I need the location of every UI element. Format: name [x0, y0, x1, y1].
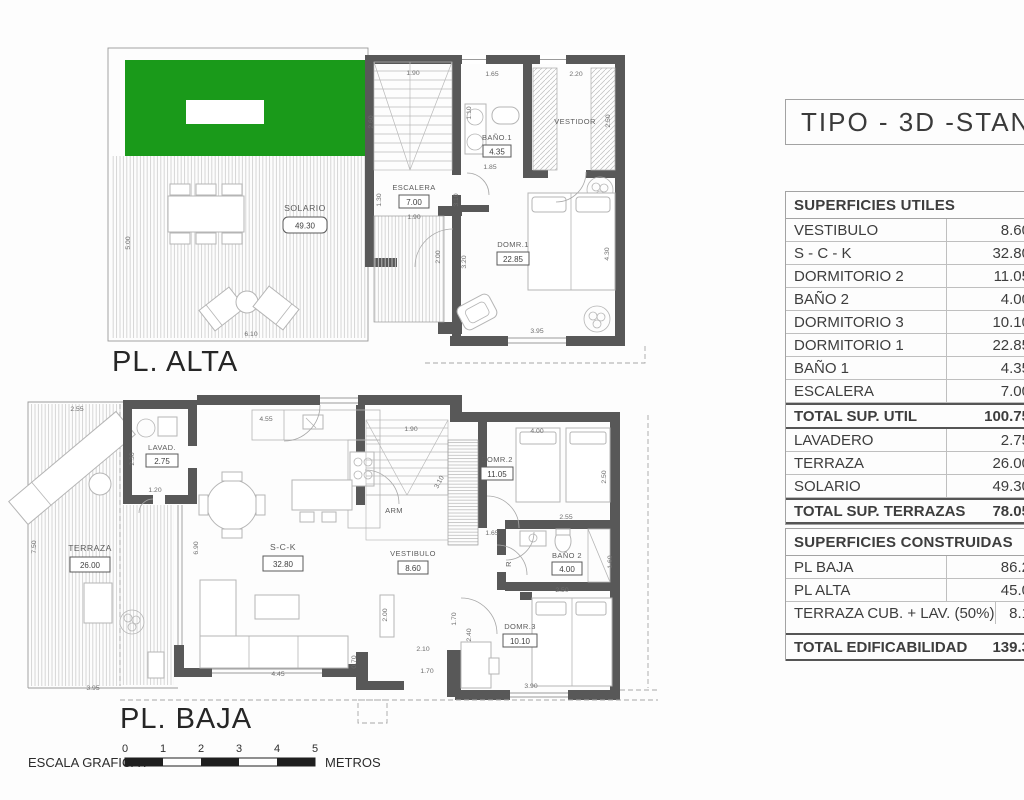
- row-label: PL BAJA: [786, 556, 946, 578]
- row-label: TOTAL SUP. TERRAZAS: [786, 500, 965, 522]
- row-label: BAÑO 1: [786, 357, 946, 379]
- row-value: 32.80: [946, 242, 1024, 264]
- table-header: SUPERFICIES CONSTRUIDAS: [786, 529, 1024, 556]
- row-value: 78.05: [965, 500, 1024, 522]
- area-value-solario: 49.30: [295, 222, 316, 231]
- dimension-label: 1.60: [607, 555, 614, 568]
- staircase-baja: [366, 420, 478, 545]
- bedroom2-furniture: [516, 428, 610, 502]
- dimension-label: 2.30: [129, 452, 136, 465]
- row-label: SOLARIO: [786, 475, 946, 497]
- table-gap: [786, 624, 1024, 633]
- dimension-label: 2.55: [70, 406, 83, 413]
- table-superficies-construidas: SUPERFICIES CONSTRUIDAS PL BAJA86.2PL AL…: [785, 528, 1024, 661]
- row-value: 49.30: [946, 475, 1024, 497]
- room-label-vestidor: VESTIDOR: [554, 117, 596, 126]
- plan-alta: SOLARIO 49.30 ESCALERA 7.00 BAÑO.1 4.35 …: [108, 48, 645, 378]
- row-label: ESCALERA: [786, 380, 946, 402]
- dimension-label: 1.10: [466, 106, 473, 119]
- dining-table-solario: [168, 184, 244, 244]
- table-row: DORMITORIO 211.05: [786, 265, 1024, 288]
- scale-tick-label: 0: [122, 743, 128, 755]
- table-row: SOLARIO49.30: [786, 475, 1024, 498]
- row-label: DORMITORIO 1: [786, 334, 946, 356]
- table-row: PL BAJA86.2: [786, 556, 1024, 579]
- room-label-vestibulo: VESTIBULO: [390, 549, 436, 558]
- table-row: TOTAL SUP. UTIL100.75: [786, 403, 1024, 429]
- dimension-label: 1.90: [407, 214, 420, 221]
- plan-sheet: SOLARIO 49.30 ESCALERA 7.00 BAÑO.1 4.35 …: [0, 0, 1024, 800]
- table-header: SUPERFICIES UTILES: [786, 192, 1024, 219]
- dimension-label: 0.70: [351, 655, 358, 668]
- row-label: LAVADERO: [786, 429, 946, 451]
- row-value: 10.10: [946, 311, 1024, 333]
- dimension-label: 1.65: [485, 71, 498, 78]
- sheet-title: TIPO - 3D -STANDAR: [786, 107, 1024, 138]
- row-value: 2.75: [946, 429, 1024, 451]
- scale-tick-label: 5: [312, 743, 318, 755]
- dimension-label: 3.10: [433, 475, 445, 490]
- room-label-sck: S-C-K: [270, 542, 296, 552]
- table-row: BAÑO 14.35: [786, 357, 1024, 380]
- area-value-bano1: 4.35: [489, 148, 505, 157]
- scale-bar-ticks: 012345: [122, 743, 318, 755]
- room-label-solario: SOLARIO: [284, 203, 326, 213]
- row-value: 8.1: [995, 602, 1024, 624]
- area-value-escalera: 7.00: [406, 198, 422, 207]
- area-value-sck: 32.80: [273, 560, 294, 569]
- row-value: 22.85: [946, 334, 1024, 356]
- row-label: BAÑO 2: [786, 288, 946, 310]
- dimension-label: 1.20: [148, 487, 161, 494]
- dimension-label: 2.50: [555, 587, 568, 594]
- scale-tick-label: 4: [274, 743, 280, 755]
- grass-cutout: [186, 100, 264, 124]
- dimension-label: 3.95: [86, 685, 99, 692]
- dimension-label: 3.10: [453, 193, 460, 206]
- table-row: BAÑO 24.00: [786, 288, 1024, 311]
- room-label-lavadero: LAVAD.: [148, 443, 176, 452]
- scale-tick-label: 3: [236, 743, 242, 755]
- room-label-dorm1: DOMR.1: [497, 240, 529, 249]
- row-label: TERRAZA CUB. + LAV. (50%): [786, 602, 995, 624]
- dimension-label: 3.95: [530, 328, 543, 335]
- row-label: DORMITORIO 2: [786, 265, 946, 287]
- room-label-r: R: [504, 561, 513, 567]
- row-label: TOTAL SUP. UTIL: [786, 405, 946, 427]
- dimension-label: 1.30: [376, 193, 383, 206]
- table-body: VESTIBULO8.60S - C - K32.80DORMITORIO 21…: [786, 219, 1024, 524]
- dimension-label: 2.00: [382, 608, 389, 621]
- dimension-label: 2.50: [605, 114, 612, 127]
- laundry-fixtures: [137, 417, 177, 437]
- room-label-bano2: BAÑO 2: [552, 551, 582, 560]
- room-label-terraza: TERRAZA: [68, 543, 112, 553]
- table-superficies-utiles: SUPERFICIES UTILES VESTIBULO8.60S - C - …: [785, 191, 1024, 525]
- dimension-label: 6.10: [244, 331, 257, 338]
- total-value: 139.3: [967, 635, 1024, 659]
- scale-bar-unit: METROS: [325, 755, 381, 770]
- scale-bar: ESCALA GRAFICA : 012345 METROS: [28, 743, 381, 770]
- table-row: DORMITORIO 310.10: [786, 311, 1024, 334]
- room-label-dorm3: DOMR.3: [504, 622, 536, 631]
- scale-tick-label: 2: [198, 743, 204, 755]
- row-value: 8.60: [946, 219, 1024, 241]
- table-row: ESCALERA7.00: [786, 380, 1024, 403]
- total-label: TOTAL EDIFICABILIDAD: [786, 635, 967, 659]
- dimension-label: 2.55: [559, 514, 572, 521]
- row-label: PL ALTA: [786, 579, 946, 601]
- table-row: TERRAZA26.00: [786, 452, 1024, 475]
- table-row: PL ALTA45.0: [786, 579, 1024, 602]
- dimension-label: 1.90: [406, 70, 419, 77]
- room-label-escalera: ESCALERA: [392, 183, 435, 192]
- dimension-label: 1.70: [451, 612, 458, 625]
- dimension-label: 6.90: [193, 541, 200, 554]
- sheet-title-box: TIPO - 3D -STANDAR: [785, 99, 1024, 145]
- sofa-corner: [200, 580, 348, 668]
- area-value-bano2: 4.00: [559, 565, 575, 574]
- table-row: LAVADERO2.75: [786, 429, 1024, 452]
- row-value: 86.2: [946, 556, 1024, 578]
- room-label-dorm2: DOMR.2: [481, 455, 513, 464]
- row-label: DORMITORIO 3: [786, 311, 946, 333]
- table-row: TERRAZA CUB. + LAV. (50%)8.1: [786, 602, 1024, 624]
- area-value-dorm2: 11.05: [487, 470, 507, 479]
- staircase-alta: [374, 62, 452, 170]
- dimension-label: 2.00: [435, 250, 442, 263]
- table-row: TOTAL SUP. TERRAZAS78.05: [786, 498, 1024, 524]
- side-terrace-hatch: [374, 216, 444, 322]
- row-value: 45.0: [946, 579, 1024, 601]
- dimension-label: 5.00: [125, 236, 132, 249]
- area-value-lavadero: 2.75: [154, 457, 170, 466]
- dining-table-sck: [199, 472, 265, 538]
- area-value-dorm1: 22.85: [503, 255, 524, 264]
- dimension-label: 7.50: [31, 540, 38, 553]
- row-value: 4.35: [946, 357, 1024, 379]
- table-row: VESTIBULO8.60: [786, 219, 1024, 242]
- scale-tick-label: 1: [160, 743, 166, 755]
- room-label-arm: ARM: [385, 506, 403, 515]
- bedroom1-furniture: [455, 193, 615, 332]
- dimension-label: 4.00: [530, 428, 543, 435]
- plan-baja: TERRAZA 26.00 LAVAD. 2.75 S-C-K 32.80 VE…: [9, 395, 658, 735]
- dimension-label: 2.40: [466, 628, 473, 641]
- row-value: 26.00: [946, 452, 1024, 474]
- area-value-terraza: 26.00: [80, 561, 101, 570]
- row-label: VESTIBULO: [786, 219, 946, 241]
- dimension-label: 1.90: [404, 426, 417, 433]
- row-value: 100.75: [946, 405, 1024, 427]
- room-label-bano1: BAÑO.1: [482, 133, 512, 142]
- dimension-label: 4.55: [259, 416, 272, 423]
- row-value: 11.05: [946, 265, 1024, 287]
- dimension-label: 1.70: [420, 668, 433, 675]
- dimension-label: 3.90: [524, 683, 537, 690]
- dashed-projection-alta: [425, 346, 645, 363]
- dimension-label: 2.10: [416, 646, 429, 653]
- dimension-label: 4.45: [271, 671, 284, 678]
- dimension-label: 3.20: [461, 255, 468, 268]
- area-value-vestibulo: 8.60: [405, 564, 421, 573]
- plan-alta-title: PL. ALTA: [112, 346, 238, 378]
- dimension-label: 1.65: [485, 530, 498, 537]
- table-body: PL BAJA86.2PL ALTA45.0TERRAZA CUB. + LAV…: [786, 556, 1024, 624]
- area-value-dorm3: 10.10: [510, 637, 531, 646]
- table-row-total: TOTAL EDIFICABILIDAD 139.3: [786, 633, 1024, 661]
- row-label: S - C - K: [786, 242, 946, 264]
- row-value: 7.00: [946, 380, 1024, 402]
- dimension-label: 2.50: [601, 470, 608, 483]
- row-value: 4.00: [946, 288, 1024, 310]
- row-label: TERRAZA: [786, 452, 946, 474]
- dimension-label: 2.20: [569, 71, 582, 78]
- plan-baja-title: PL. BAJA: [120, 703, 252, 735]
- table-row: DORMITORIO 122.85: [786, 334, 1024, 357]
- dimension-label: 2.60: [368, 115, 375, 128]
- dimension-label: 1.85: [483, 164, 496, 171]
- dimension-label: 4.30: [604, 247, 611, 260]
- table-row: S - C - K32.80: [786, 242, 1024, 265]
